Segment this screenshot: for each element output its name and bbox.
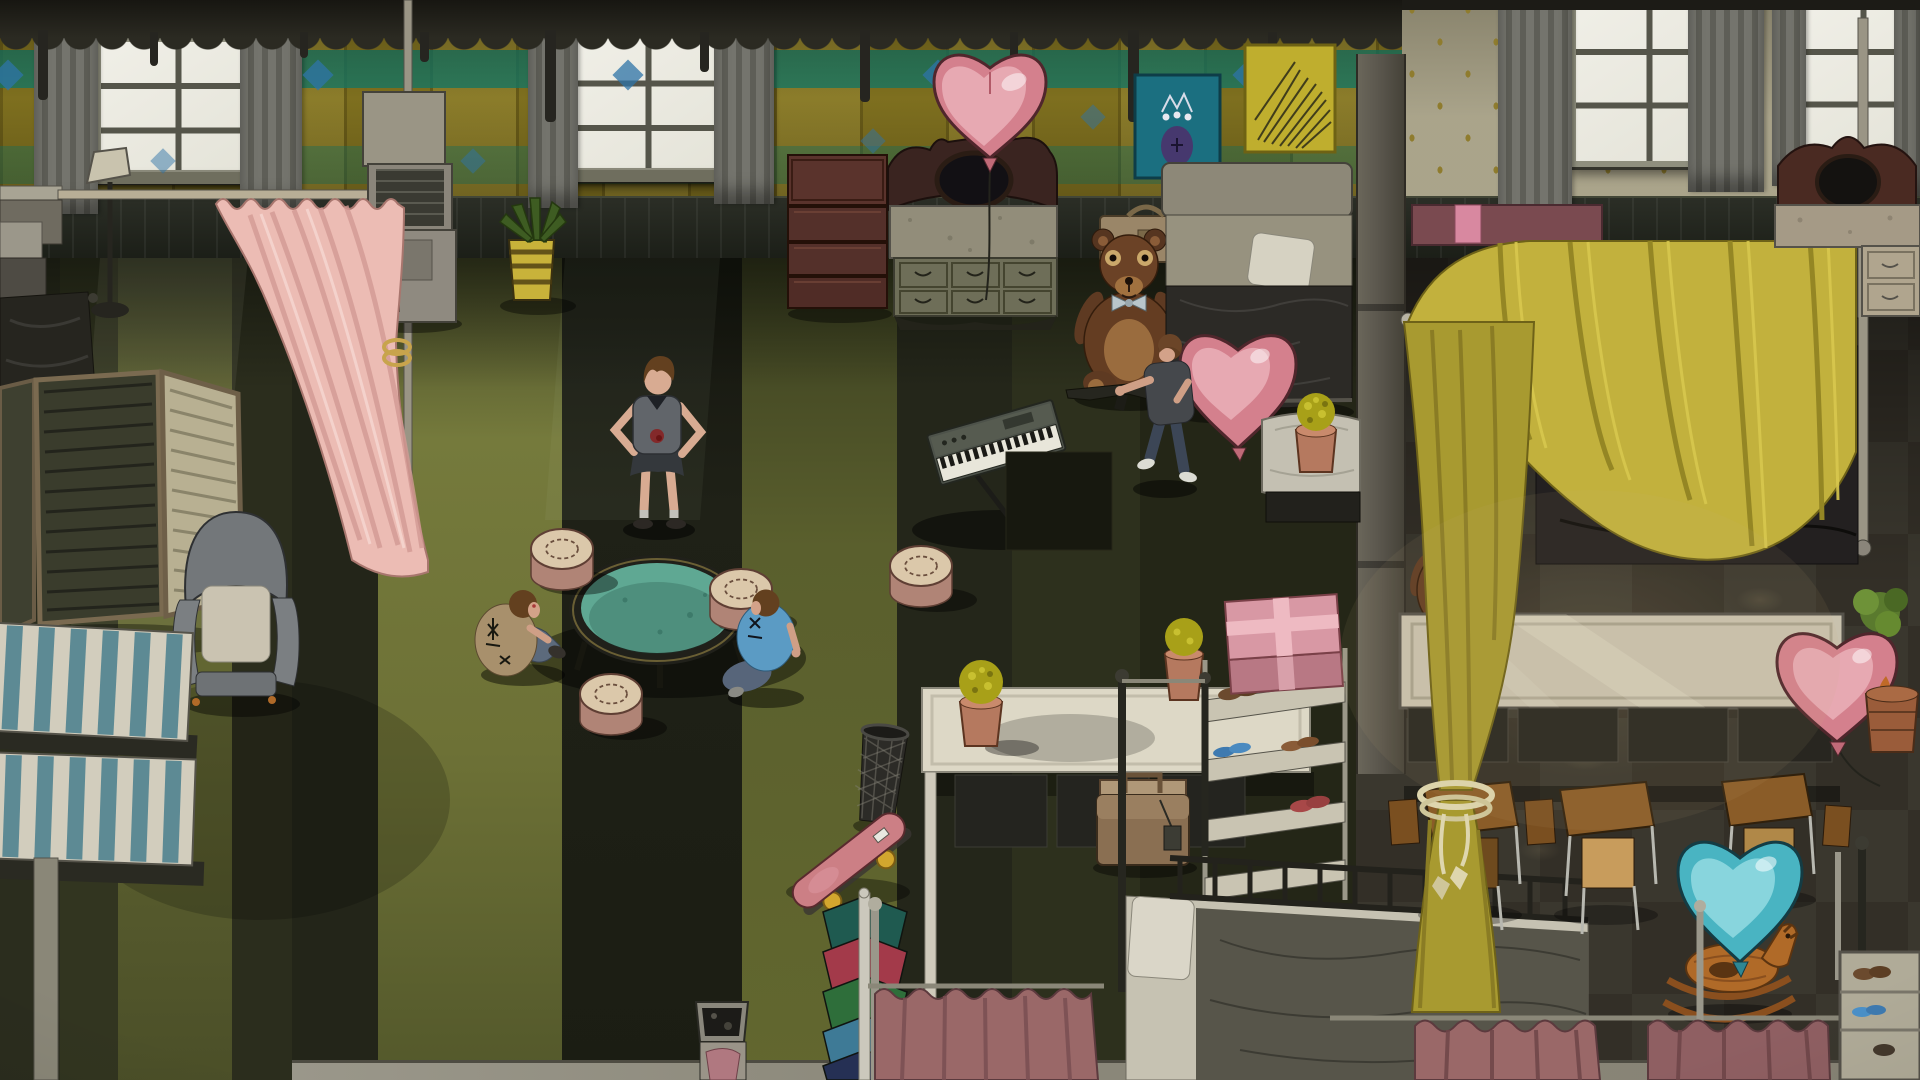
floor-potted-plant [1165, 618, 1203, 700]
vanity-dresser[interactable] [888, 133, 1057, 330]
luggage-tag [1164, 826, 1181, 850]
red-chest-of-drawers[interactable] [788, 155, 892, 323]
rose-curtain-left[interactable] [868, 986, 1104, 1080]
light-shaft [545, 258, 720, 520]
stump-stool[interactable] [531, 529, 618, 595]
game-viewport [0, 0, 1920, 1080]
gray-post-bottom-left [34, 858, 58, 1080]
dark-box [1006, 452, 1112, 550]
shoe-shelf-bottom-right[interactable] [1840, 952, 1920, 1080]
dresser-right-room[interactable] [1862, 246, 1920, 316]
metal-crate[interactable] [696, 1002, 748, 1080]
pillow [1127, 896, 1194, 980]
vanity-mirror [937, 153, 1011, 207]
pink-gift-box[interactable] [1225, 594, 1343, 694]
props-layer [0, 0, 1920, 1080]
green-bush [1853, 588, 1908, 637]
striped-mattress[interactable] [0, 752, 208, 885]
poster-yellow[interactable] [1245, 45, 1335, 152]
mauve-wall-shelf [1412, 205, 1602, 245]
wallpaper-diamonds [0, 59, 1264, 173]
curtain-rail [58, 190, 410, 199]
vanity-right-room[interactable] [1775, 137, 1920, 247]
striped-mattress[interactable] [0, 623, 203, 760]
sunlight-pool [1340, 490, 1840, 830]
stump-stool[interactable] [890, 546, 977, 612]
pillow [1247, 232, 1316, 292]
